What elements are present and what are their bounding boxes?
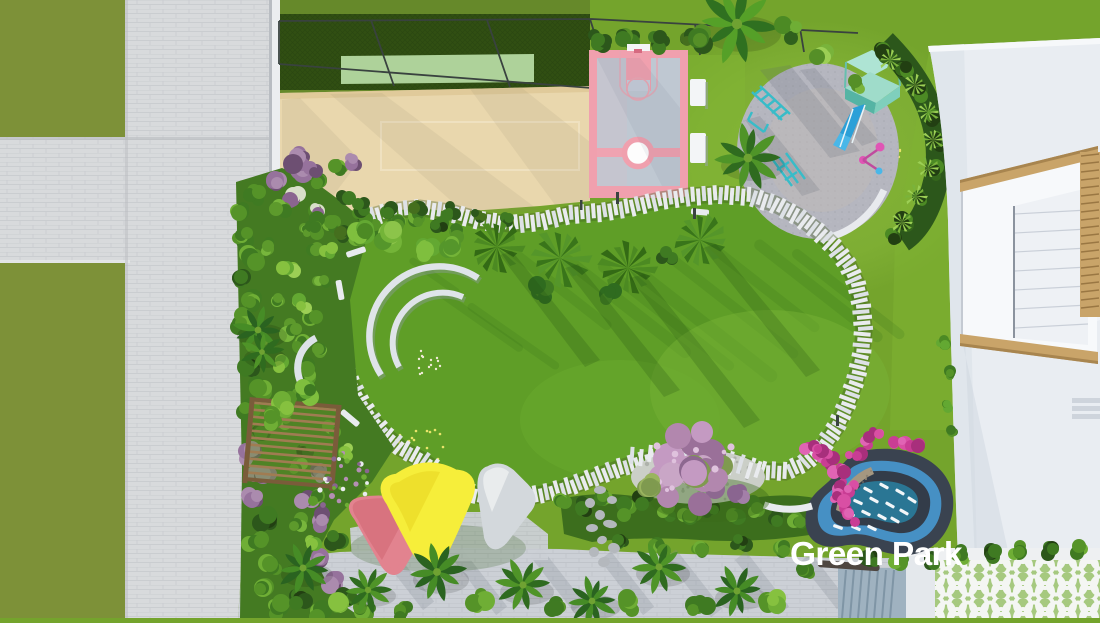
svg-text:Green Park: Green Park	[790, 536, 963, 573]
